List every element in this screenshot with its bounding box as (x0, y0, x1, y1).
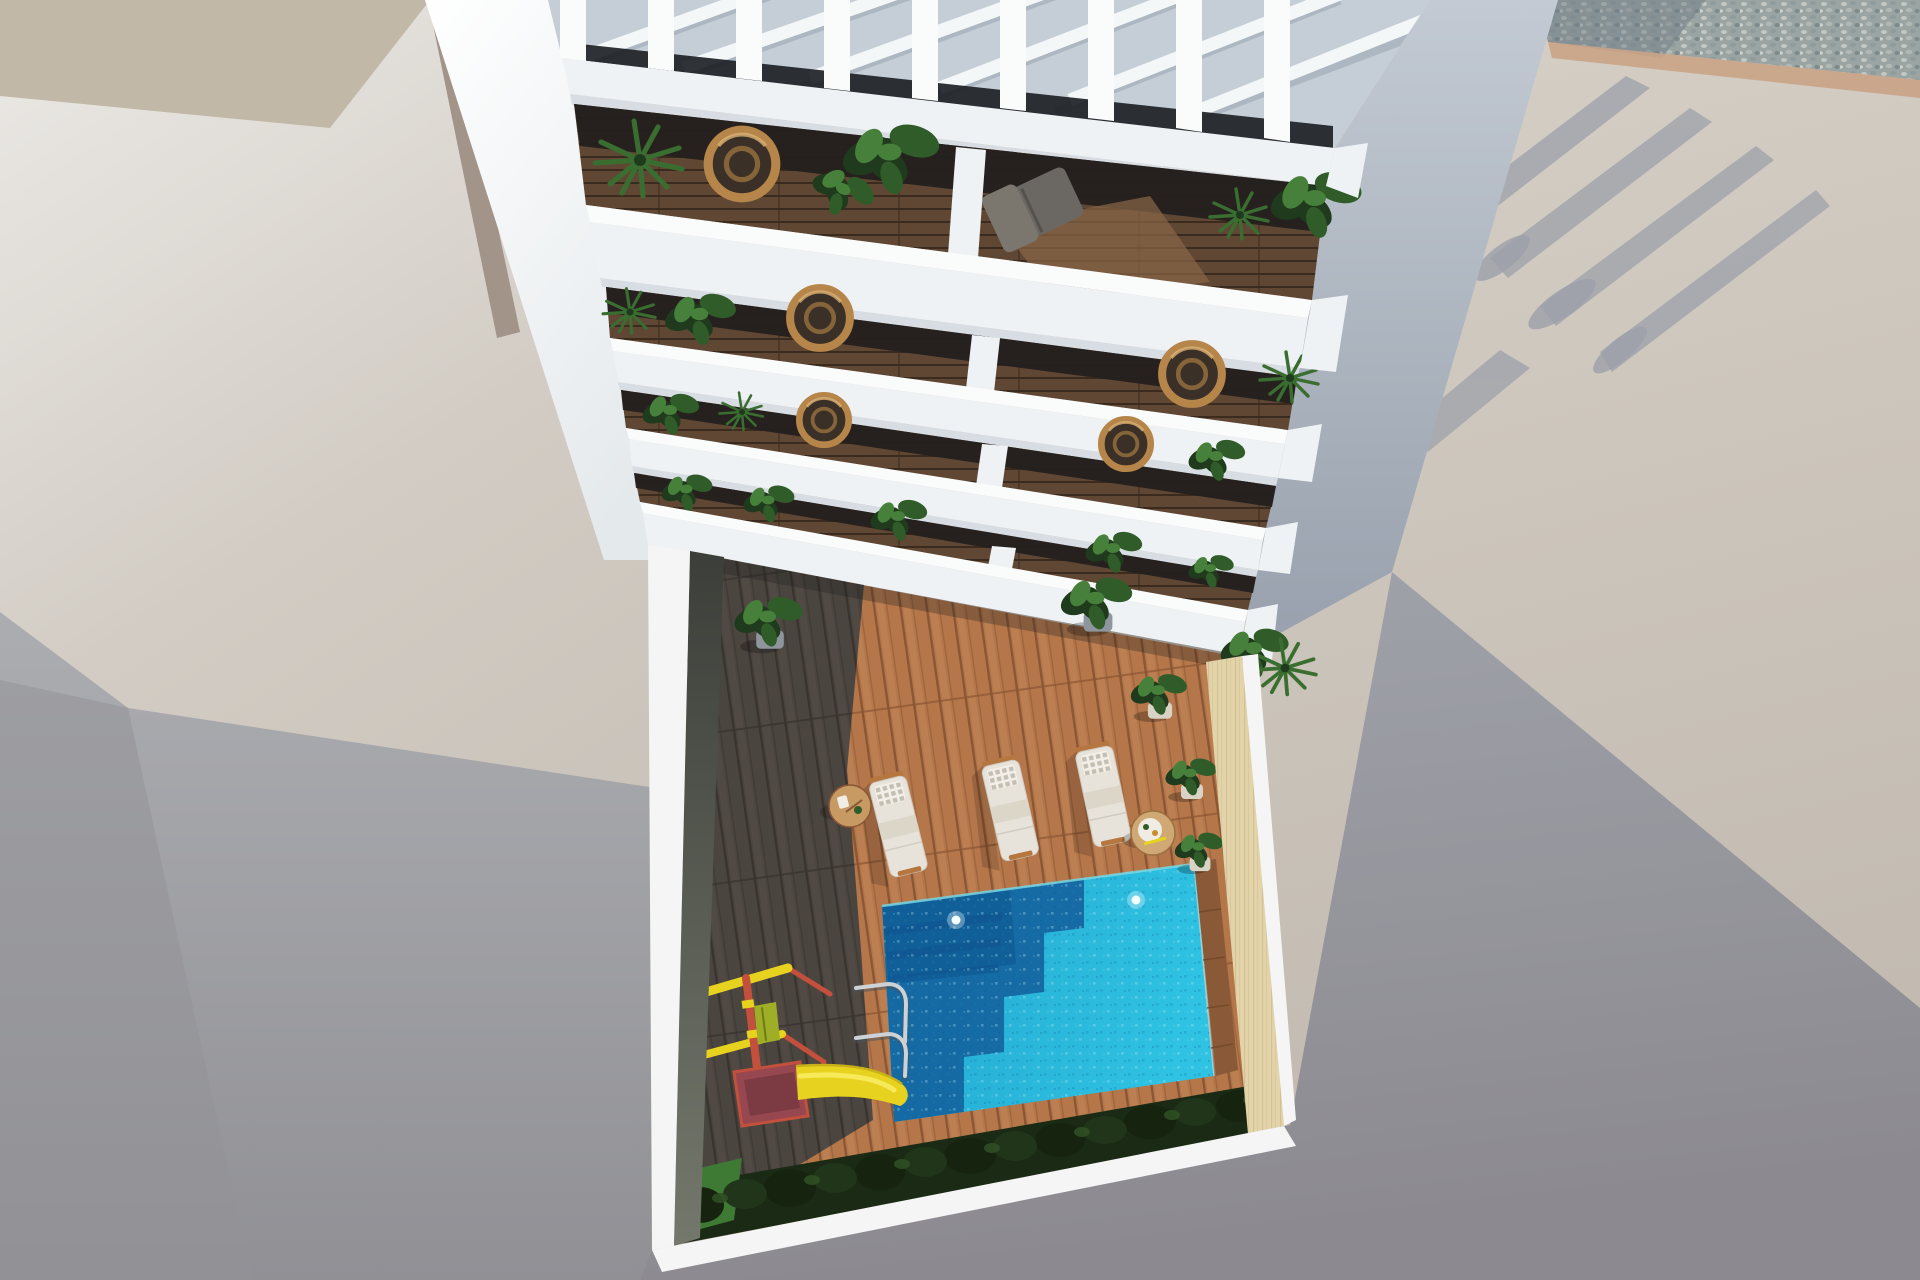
aerial-building-render (0, 0, 1920, 1280)
swimming-pool (856, 864, 1214, 1122)
render-viewport (0, 0, 1920, 1280)
playground-panel (754, 1002, 780, 1044)
balcony-2-divider (966, 335, 1000, 392)
